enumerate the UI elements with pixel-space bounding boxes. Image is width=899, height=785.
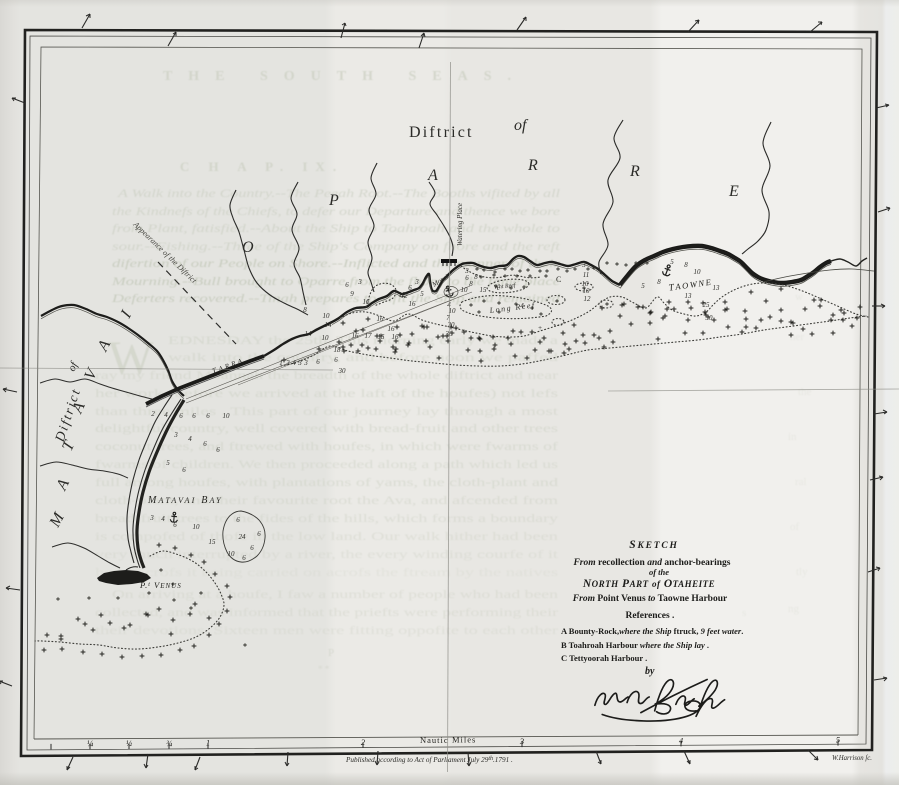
svg-text:Deferters recovered.--Tinah pr: Deferters recovered.--Tinah prepares to …: [111, 291, 562, 305]
svg-text:10: 10: [193, 523, 201, 531]
svg-text:From Point Venus to Taowne Har: From Point Venus to Taowne Harbour: [572, 594, 728, 604]
svg-text:Diftrict: Diftrict: [409, 124, 474, 141]
svg-text:6: 6: [316, 358, 320, 366]
svg-text:of: of: [66, 359, 81, 374]
svg-text:10: 10: [694, 268, 702, 276]
svg-text:* *: * *: [318, 664, 330, 674]
svg-text:T: T: [59, 438, 79, 454]
svg-text:of: of: [514, 117, 529, 134]
svg-text:¾: ¾: [166, 738, 173, 748]
svg-text:8: 8: [474, 273, 478, 281]
svg-text:3: 3: [414, 278, 419, 286]
svg-text:4: 4: [292, 359, 296, 367]
svg-text:10: 10: [583, 287, 591, 295]
svg-text:6: 6: [192, 412, 196, 420]
svg-text:B Toahroah Harbour where the: B Toahroah Harbour where the Ship lay .: [561, 640, 709, 650]
svg-text:6: 6: [250, 544, 254, 552]
svg-text:11: 11: [583, 271, 589, 279]
svg-text:C: C: [556, 275, 561, 284]
svg-text:4: 4: [161, 515, 165, 523]
svg-text:from Plant, fatisfied.--About: from Plant, fatisfied.--About the Ship t…: [112, 221, 560, 235]
svg-text:8: 8: [469, 280, 473, 288]
svg-text:R: R: [629, 163, 640, 180]
svg-text:16: 16: [392, 333, 400, 341]
svg-text:very much interrupted by a riv: very much interrupted by a river, the ev…: [95, 547, 559, 561]
svg-text:3: 3: [581, 261, 586, 269]
svg-text:24: 24: [239, 533, 247, 541]
svg-text:full among houfes, with planta: full among houfes, with plantations of y…: [95, 475, 558, 489]
svg-text:13: 13: [713, 284, 721, 292]
svg-text:16: 16: [377, 315, 385, 323]
svg-text:4: 4: [188, 435, 192, 443]
svg-text:E: E: [728, 183, 739, 200]
svg-text:15: 15: [378, 333, 386, 341]
svg-text:8: 8: [684, 261, 688, 269]
svg-text:3: 3: [357, 278, 362, 286]
svg-text:9: 9: [350, 290, 354, 298]
svg-text:ral: ral: [795, 476, 807, 488]
svg-text:4: 4: [679, 735, 684, 745]
svg-text:16: 16: [363, 298, 371, 306]
svg-text:sour.--Fishing.--Three of the: sour.--Fishing.--Three of the Ship's Com…: [112, 239, 561, 253]
svg-text:5: 5: [166, 459, 170, 467]
svg-text:Published according to Act of: Published according to Act of Parliament…: [345, 756, 513, 764]
svg-text:coconut trees, and ftrewed wit: coconut trees, and ftrewed with houfes, …: [95, 439, 558, 453]
svg-text:12: 12: [584, 295, 592, 303]
svg-text:+: +: [538, 324, 543, 332]
svg-text:17: 17: [365, 332, 373, 340]
svg-text:A Bounty-Rock,where the Ship: A Bounty-Rock,where the Ship ftruck, 9 f…: [561, 626, 743, 636]
svg-text:P: P: [328, 647, 334, 659]
svg-text:5: 5: [670, 258, 674, 266]
svg-text:fwarms of children. We then p: fwarms of children. We then proceeded al…: [95, 457, 558, 471]
svg-text:O: O: [242, 239, 254, 256]
svg-text:C H A P. IX.: C H A P. IX.: [180, 159, 344, 174]
svg-text:I: I: [117, 307, 135, 322]
svg-text:10: 10: [322, 334, 330, 342]
svg-text:4: 4: [164, 411, 168, 419]
svg-text:A: A: [427, 167, 438, 184]
svg-text:tly: tly: [796, 566, 808, 578]
svg-text:6: 6: [182, 466, 186, 474]
svg-text:10: 10: [223, 412, 231, 420]
svg-text:5: 5: [836, 735, 840, 745]
svg-text:6: 6: [408, 284, 412, 292]
svg-text:30: 30: [338, 367, 347, 375]
svg-text:12: 12: [401, 292, 409, 300]
svg-text:W.Harrison ſc.: W.Harrison ſc.: [832, 755, 872, 762]
svg-text:is compofed of thofe in the lo: is compofed of thofe in the low land. Ou…: [95, 529, 558, 543]
svg-text:1: 1: [279, 359, 283, 367]
svg-text:2: 2: [361, 737, 366, 747]
svg-text:w: w: [795, 291, 803, 303]
svg-text:their devotions. Sixteen men: their devotions. Sixteen men were fittin…: [95, 623, 558, 637]
svg-text:2: 2: [151, 410, 155, 418]
svg-text:20: 20: [448, 321, 456, 329]
svg-text:6: 6: [334, 356, 338, 364]
svg-text:18: 18: [334, 346, 342, 354]
svg-text:THE SOUTH SEAS.: THE SOUTH SEAS.: [163, 69, 527, 84]
svg-text:16: 16: [409, 300, 417, 308]
svg-text:30: 30: [705, 314, 714, 322]
svg-text:6: 6: [203, 440, 207, 448]
svg-text:6: 6: [257, 530, 261, 538]
svg-text:R: R: [527, 157, 538, 174]
svg-text:¼: ¼: [87, 738, 94, 748]
svg-text:in: in: [788, 431, 797, 443]
svg-text:Diftrict: Diftrict: [52, 386, 84, 445]
svg-text:of: of: [790, 521, 800, 533]
svg-text:6: 6: [345, 281, 349, 289]
svg-text:13: 13: [685, 292, 693, 300]
svg-text:3: 3: [303, 359, 308, 367]
svg-text:A: A: [53, 476, 73, 493]
svg-text:10: 10: [228, 550, 236, 558]
svg-text:15: 15: [480, 286, 488, 294]
svg-text:8: 8: [657, 278, 661, 286]
svg-text:had to crofs it being carried: had to crofs it being carried on acrofs …: [95, 565, 559, 579]
svg-text:3: 3: [173, 431, 178, 439]
svg-text:1: 1: [206, 738, 210, 748]
svg-text:Nautic: Nautic: [420, 735, 449, 745]
svg-text:MATAVAI BAY: MATAVAI BAY: [147, 495, 223, 506]
svg-text:References .: References .: [626, 611, 675, 621]
svg-text:15: 15: [209, 538, 217, 546]
svg-text:16: 16: [352, 332, 360, 340]
svg-text:10: 10: [323, 312, 331, 320]
svg-text:the: the: [798, 386, 812, 398]
svg-text:14: 14: [325, 321, 333, 329]
svg-text:25: 25: [703, 301, 711, 309]
svg-text:Watering Place: Watering Place: [456, 203, 464, 246]
svg-text:6: 6: [216, 446, 220, 454]
svg-text:3: 3: [149, 514, 154, 522]
svg-text:c: c: [497, 285, 500, 292]
svg-text:M: M: [46, 509, 69, 531]
svg-text:14: 14: [305, 330, 313, 338]
svg-text:of the: of the: [649, 567, 669, 577]
svg-text:Miles: Miles: [452, 735, 476, 745]
svg-text:8: 8: [303, 306, 307, 314]
svg-text:SKETCH: SKETCH: [629, 539, 678, 551]
svg-text:NORTH PART of OTAHEITE: NORTH PART of OTAHEITE: [582, 578, 715, 590]
svg-text:10: 10: [461, 286, 469, 294]
svg-text:s: s: [742, 607, 746, 619]
svg-text:30: 30: [445, 330, 454, 338]
svg-text:6: 6: [179, 412, 183, 420]
svg-text:collected, and was informed th: collected, and was informed that the pri…: [95, 605, 558, 619]
svg-text:5: 5: [641, 282, 645, 290]
svg-text:3: 3: [297, 359, 302, 367]
svg-text:ng: ng: [788, 603, 800, 615]
svg-text:her: her: [790, 331, 804, 343]
svg-text:P.t VENUS: P.t VENUS: [139, 580, 182, 590]
svg-text:16: 16: [388, 325, 396, 333]
svg-text:6: 6: [206, 412, 210, 420]
svg-text:6: 6: [242, 554, 246, 562]
svg-text:6: 6: [236, 516, 240, 524]
svg-text:3: 3: [519, 736, 524, 746]
svg-text:P: P: [328, 192, 339, 209]
svg-text:by: by: [645, 666, 655, 677]
svg-text:3: 3: [285, 359, 290, 367]
svg-text:5: 5: [420, 290, 424, 298]
svg-text:½: ½: [126, 738, 133, 748]
svg-text:C Tettyoorah Harbour .: C Tettyoorah Harbour .: [561, 653, 647, 663]
